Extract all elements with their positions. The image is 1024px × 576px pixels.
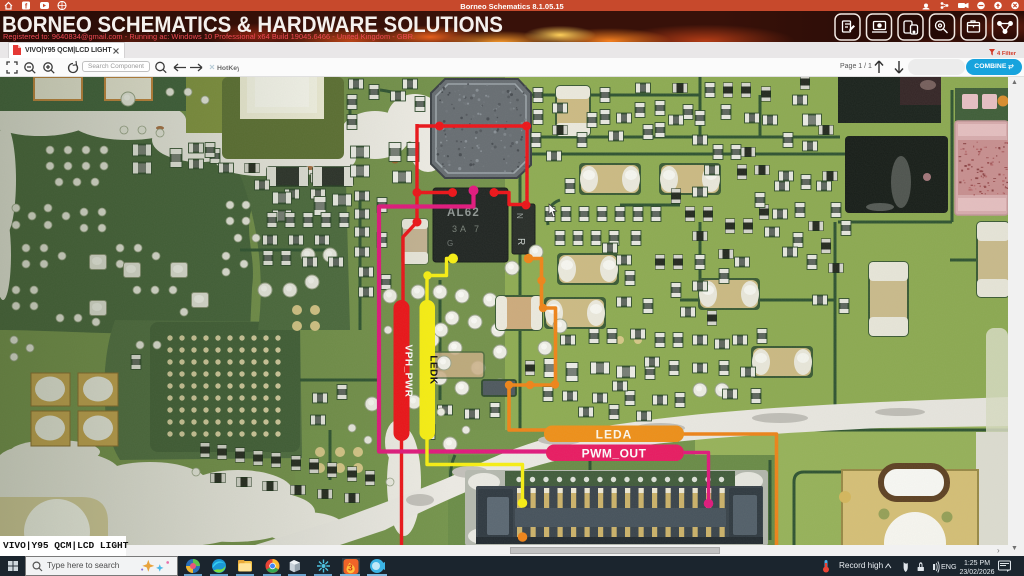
svg-text:3: 3 — [348, 563, 353, 573]
svg-text:HotKey: HotKey — [217, 65, 239, 72]
svg-text:4 Filter: 4 Filter — [997, 51, 1017, 57]
